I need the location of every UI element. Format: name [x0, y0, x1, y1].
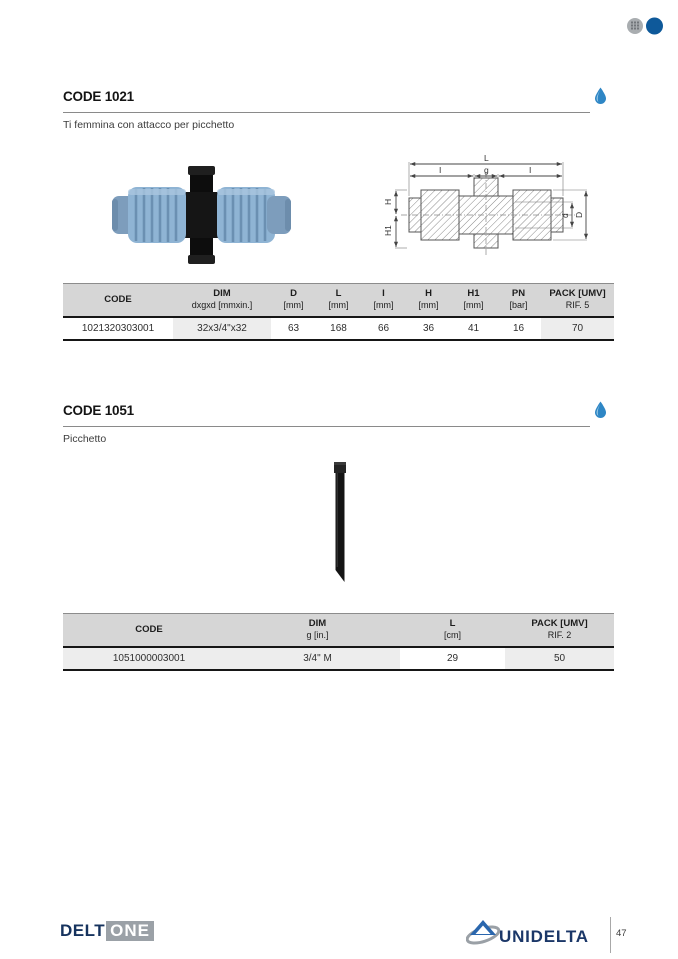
- dim-label-L: L: [484, 153, 489, 163]
- product-photo-stake: [329, 461, 351, 592]
- deltone-logo: DELTONE: [60, 921, 154, 941]
- col-header-pn: PN[bar]: [496, 284, 541, 317]
- cell-h1: 41: [451, 317, 496, 340]
- cell-pn: 16: [496, 317, 541, 340]
- cell-l: 168: [316, 317, 361, 340]
- cell-code: 1051000003001: [63, 647, 235, 670]
- spec-table-1021: CODE DIMdxgxd [mmxin.] D[mm] L[mm] I[mm]…: [63, 283, 614, 341]
- cell-d: 63: [271, 317, 316, 340]
- section1-title: CODE 1021: [63, 89, 134, 104]
- spec-table-1051: CODE DIMg [in.] L[cm] PACK [UMV]RIF. 2 1…: [63, 613, 614, 671]
- perforated-sphere-icon: [627, 18, 643, 34]
- water-drop-icon: [594, 87, 607, 109]
- table-header-row: CODE DIMdxgxd [mmxin.] D[mm] L[mm] I[mm]…: [63, 284, 614, 317]
- category-icons: [626, 16, 666, 41]
- section1-header: CODE 1021: [63, 89, 609, 117]
- dim-label-H: H: [383, 199, 393, 205]
- col-header-code: CODE: [63, 614, 235, 647]
- col-header-dim: DIMg [in.]: [235, 614, 400, 647]
- section1-subtitle: Ti femmina con attacco per picchetto: [63, 119, 234, 131]
- col-header-dim: DIMdxgxd [mmxin.]: [173, 284, 271, 317]
- col-header-h1: H1[mm]: [451, 284, 496, 317]
- cell-dim: 3/4" M: [235, 647, 400, 670]
- cell-pack: 50: [505, 647, 614, 670]
- water-drop-icon: [594, 401, 607, 423]
- section2-header: CODE 1051: [63, 403, 609, 431]
- cell-l: 29: [400, 647, 505, 670]
- col-header-pack: PACK [UMV]RIF. 5: [541, 284, 614, 317]
- col-header-pack: PACK [UMV]RIF. 2: [505, 614, 614, 647]
- solid-sphere-icon: [646, 18, 663, 35]
- col-header-d: D[mm]: [271, 284, 316, 317]
- deltone-logo-delt: DELT: [60, 921, 105, 941]
- section1-rule: [63, 112, 590, 113]
- cell-code: 1021320303001: [63, 317, 173, 340]
- table-header-row: CODE DIMg [in.] L[cm] PACK [UMV]RIF. 2: [63, 614, 614, 647]
- technical-drawing: L I g I H H1 d D: [381, 152, 599, 275]
- section2-title: CODE 1051: [63, 403, 134, 418]
- table-row: 1051000003001 3/4" M 29 50: [63, 647, 614, 670]
- cell-i: 66: [361, 317, 406, 340]
- section2-rule: [63, 426, 590, 427]
- unidelta-logo-text: UNIDELTA: [499, 927, 589, 946]
- dim-label-I-left: I: [439, 165, 441, 175]
- col-header-code: CODE: [63, 284, 173, 317]
- dim-label-I-right: I: [529, 165, 531, 175]
- col-header-i: I[mm]: [361, 284, 406, 317]
- col-header-l: L[cm]: [400, 614, 505, 647]
- page-number: 47: [616, 928, 627, 939]
- footer-divider: [610, 917, 611, 953]
- product-photo-tee: [108, 161, 294, 272]
- unidelta-logo: UNIDELTA: [466, 917, 600, 951]
- col-header-h: H[mm]: [406, 284, 451, 317]
- catalog-page: CODE 1021 Ti femmina con attacco per pic…: [0, 0, 678, 959]
- cell-dim: 32x3/4"x32: [173, 317, 271, 340]
- cell-pack: 70: [541, 317, 614, 340]
- dim-label-D: D: [574, 212, 584, 218]
- deltone-logo-one: ONE: [106, 921, 154, 941]
- dim-label-g: g: [484, 165, 489, 175]
- table-row: 1021320303001 32x3/4"x32 63 168 66 36 41…: [63, 317, 614, 340]
- dim-label-H1: H1: [383, 225, 393, 236]
- section2-subtitle: Picchetto: [63, 433, 106, 445]
- cell-h: 36: [406, 317, 451, 340]
- dim-label-d: d: [560, 213, 570, 218]
- col-header-l: L[mm]: [316, 284, 361, 317]
